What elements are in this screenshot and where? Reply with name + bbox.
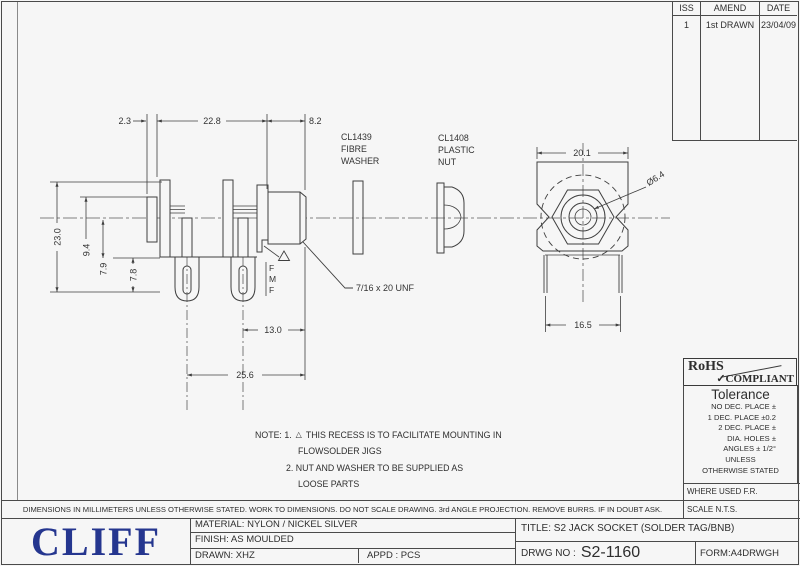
tolerance-line-1: 1 DEC. PLACE ±0.2	[684, 413, 797, 424]
nut-label-3: NUT	[438, 157, 457, 167]
marking-m: M	[269, 274, 276, 284]
material-block: MATERIAL: NYLON / NICKEL SILVER FINISH: …	[190, 518, 515, 564]
dim-23-0: 23.0	[53, 228, 63, 246]
drawing-number-row: DRWG NO : S2-1160 FORM:A4DRWGH	[516, 542, 798, 565]
recess-leader	[264, 246, 279, 257]
tolerance-line-0: NO DEC. PLACE ±	[684, 402, 797, 413]
revision-date-value: 23/04/09	[760, 16, 797, 34]
revision-amend-value: 1st DRAWN	[701, 16, 759, 34]
dim-7-8: 7.8	[129, 269, 139, 282]
tolerance-line-4: ANGLES ± 1/2°	[684, 444, 797, 455]
revision-col-date: DATE 23/04/09	[760, 2, 797, 140]
solder-tag-2	[223, 180, 233, 257]
drawing-sheet: 2.3 22.8 8.2 23.0 9.4 7.9 7.8 13.0 25.6 …	[0, 0, 800, 566]
nut-label-1: CL1408	[438, 133, 469, 143]
triangle-icon: △	[296, 427, 302, 443]
revision-table: ISS 1 AMEND 1st DRAWN DATE 23/04/09	[672, 2, 797, 141]
note-2-line-1: 2. NUT AND WASHER TO BE SUPPLIED AS	[286, 460, 575, 476]
revision-header-iss: ISS	[673, 2, 700, 16]
thread-leader	[303, 242, 353, 288]
drwg-no-value: S2-1160	[581, 544, 640, 562]
part-labels: CL1439 FIBRE WASHER CL1408 PLASTIC NUT	[341, 132, 475, 167]
tolerance-line-6: OTHERWISE STATED	[684, 466, 797, 477]
rohs-compliant-label: ✓COMPLIANT	[716, 372, 794, 385]
finish-row: FINISH: AS MOULDED	[190, 533, 515, 548]
recess-triangle-marker	[279, 251, 290, 261]
thread-callout: 7/16 x 20 UNF	[356, 283, 415, 293]
revision-header-date: DATE	[760, 2, 797, 16]
end-view-outline	[537, 162, 628, 251]
dim-7-9: 7.9	[99, 263, 109, 276]
dim-25-6: 25.6	[236, 370, 254, 380]
form-cell: FORM:A4DRWGH	[696, 548, 798, 559]
disclaimer-strip: DIMENSIONS IN MILLIMETERS UNLESS OTHERWI…	[2, 500, 683, 519]
revision-col-amend: AMEND 1st DRAWN	[701, 2, 760, 140]
material-row: MATERIAL: NYLON / NICKEL SILVER	[190, 518, 515, 533]
revision-header-amend: AMEND	[701, 2, 759, 16]
dim-text-masks	[51, 223, 139, 286]
rohs-compliant-badge: RoHS ✓COMPLIANT	[683, 358, 797, 386]
dim-9-4: 9.4	[82, 244, 92, 257]
scale-box: SCALE N.T.S.	[683, 500, 800, 519]
note-label: NOTE: 1.	[255, 427, 292, 443]
drawn-cell: DRAWN: XHZ	[190, 549, 359, 563]
note-1-line-1: THIS RECESS IS TO FACILITATE MOUNTING IN	[306, 427, 502, 443]
logo-box: CLIFF	[2, 518, 191, 564]
dim-8-2: 8.2	[309, 116, 322, 126]
body-plate-with-recess	[257, 185, 268, 252]
note-1-line-2: FLOWSOLDER JIGS	[298, 443, 575, 459]
end-view	[537, 162, 628, 293]
marking-f1: F	[269, 263, 274, 273]
revision-col-iss: ISS 1	[673, 2, 701, 140]
fibre-washer	[353, 181, 363, 254]
tag-plate-2	[238, 218, 248, 257]
tolerance-line-2: 2 DEC. PLACE ±	[684, 423, 797, 434]
dim-22-8: 22.8	[203, 116, 221, 126]
solder-tag-1	[160, 180, 170, 257]
washer-label-3: WASHER	[341, 156, 379, 166]
thread-hatch	[168, 206, 258, 213]
dim-20-1: 20.1	[573, 148, 591, 158]
tag-plate-1	[182, 218, 192, 257]
washer-label-1: CL1439	[341, 132, 372, 142]
drwg-no-label: DRWG NO :	[521, 548, 576, 559]
dim-16-5: 16.5	[574, 320, 592, 330]
washer-plate	[147, 197, 157, 242]
tolerance-line-3: DIA. HOLES ±	[684, 434, 797, 445]
tolerance-box: Tolerance NO DEC. PLACE ± 1 DEC. PLACE ±…	[683, 385, 798, 484]
drawing-number-cell: DRWG NO : S2-1160	[516, 542, 696, 565]
tolerance-line-5: UNLESS	[684, 455, 797, 466]
dim-hole-dia: Ø6.4	[644, 169, 666, 188]
side-view	[147, 180, 464, 301]
where-used-box: WHERE USED F.R.	[683, 483, 800, 501]
revision-iss-value: 1	[673, 16, 700, 34]
drawing-title: TITLE: S2 JACK SOCKET (SOLDER TAG/BNB)	[516, 518, 798, 542]
appd-cell: APPD : PCS	[359, 549, 515, 563]
dim-2-3: 2.3	[118, 116, 131, 126]
drawn-appd-row: DRAWN: XHZ APPD : PCS	[190, 549, 515, 563]
marking-f2: F	[269, 285, 274, 295]
dim-13-0: 13.0	[264, 325, 282, 335]
title-block: TITLE: S2 JACK SOCKET (SOLDER TAG/BNB) D…	[515, 518, 798, 564]
drawing-notes: NOTE: 1. △ THIS RECESS IS TO FACILITATE …	[255, 427, 575, 493]
note-2-line-2: LOOSE PARTS	[298, 476, 575, 492]
body-markings: F M F	[269, 263, 276, 295]
nut-label-2: PLASTIC	[438, 145, 475, 155]
washer-label-2: FIBRE	[341, 144, 367, 154]
tolerance-heading: Tolerance	[684, 387, 797, 402]
cliff-logo: CLIFF	[31, 518, 161, 565]
